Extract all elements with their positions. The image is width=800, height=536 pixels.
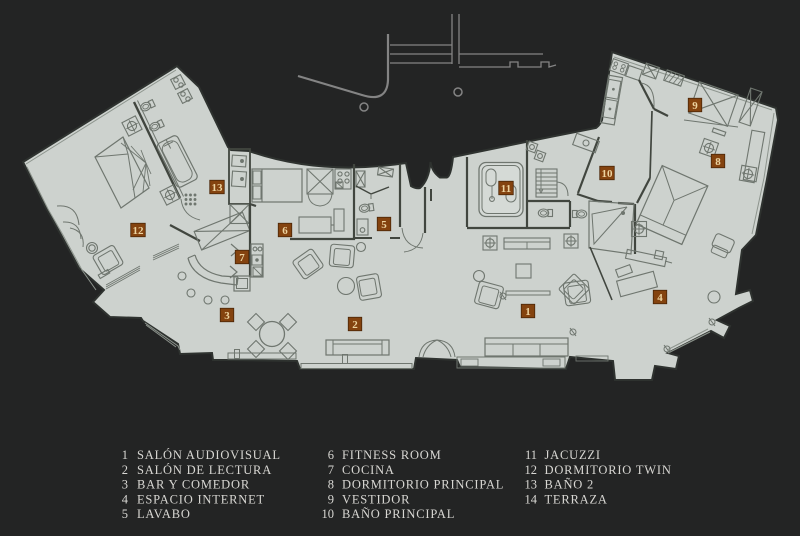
svg-text:3: 3	[224, 310, 230, 322]
svg-text:SALÓN DE LECTURA: SALÓN DE LECTURA	[137, 463, 272, 477]
svg-text:BAR Y COMEDOR: BAR Y COMEDOR	[137, 478, 250, 492]
svg-text:7: 7	[328, 463, 334, 477]
svg-text:12: 12	[525, 463, 538, 477]
svg-text:BAÑO 2: BAÑO 2	[545, 478, 595, 492]
svg-text:1: 1	[122, 448, 128, 462]
svg-text:LAVABO: LAVABO	[137, 507, 191, 521]
svg-text:4: 4	[122, 492, 129, 506]
svg-text:JACUZZI: JACUZZI	[545, 448, 601, 462]
svg-text:1: 1	[525, 306, 531, 318]
svg-text:8: 8	[328, 478, 334, 492]
svg-text:6: 6	[328, 448, 334, 462]
svg-text:7: 7	[239, 252, 245, 264]
svg-text:SALÓN AUDIOVISUAL: SALÓN AUDIOVISUAL	[137, 448, 281, 462]
svg-text:VESTIDOR: VESTIDOR	[342, 492, 410, 506]
svg-text:9: 9	[328, 492, 334, 506]
svg-text:DORMITORIO TWIN: DORMITORIO TWIN	[545, 463, 672, 477]
svg-text:14: 14	[525, 492, 538, 506]
svg-text:12: 12	[133, 225, 145, 237]
svg-text:5: 5	[122, 507, 128, 521]
svg-text:4: 4	[657, 292, 663, 304]
svg-text:8: 8	[715, 156, 721, 168]
svg-text:DORMITORIO PRINCIPAL: DORMITORIO PRINCIPAL	[342, 478, 504, 492]
svg-text:9: 9	[692, 100, 698, 112]
svg-text:FITNESS ROOM: FITNESS ROOM	[342, 448, 442, 462]
svg-text:11: 11	[501, 183, 511, 195]
svg-text:5: 5	[381, 219, 387, 231]
svg-text:13: 13	[212, 182, 224, 194]
svg-text:3: 3	[122, 478, 128, 492]
svg-text:13: 13	[525, 478, 538, 492]
svg-text:COCINA: COCINA	[342, 463, 395, 477]
svg-text:ESPACIO INTERNET: ESPACIO INTERNET	[137, 492, 265, 506]
svg-text:11: 11	[525, 448, 537, 462]
svg-text:BAÑO PRINCIPAL: BAÑO PRINCIPAL	[342, 507, 455, 521]
svg-text:10: 10	[602, 168, 614, 180]
svg-text:2: 2	[122, 463, 128, 477]
svg-text:6: 6	[282, 225, 288, 237]
svg-text:2: 2	[352, 319, 358, 331]
svg-text:TERRAZA: TERRAZA	[545, 492, 608, 506]
svg-text:10: 10	[322, 507, 335, 521]
